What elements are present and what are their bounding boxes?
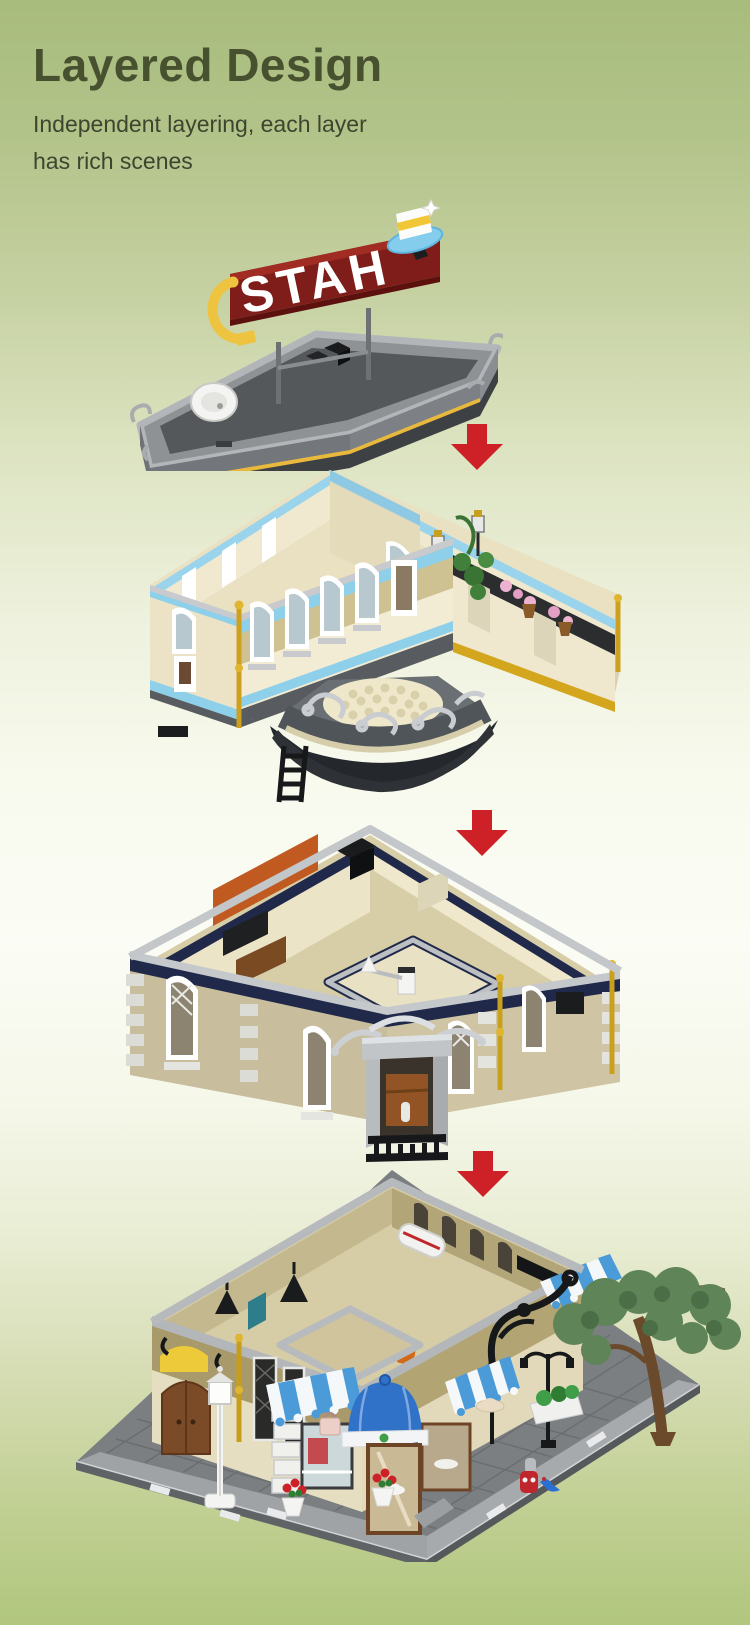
ground-floor-illustration <box>62 1142 742 1562</box>
page-title: Layered Design <box>33 38 383 92</box>
down-arrow-2 <box>456 810 508 856</box>
down-arrow-icon <box>457 1151 509 1197</box>
product-detail-page: Layered Design Independent layering, eac… <box>0 0 750 1625</box>
roof-illustration: STAH <box>128 196 503 471</box>
middle-floor-illustration <box>118 812 623 1162</box>
layer-ground-floor <box>62 1142 742 1562</box>
down-arrow-1 <box>451 424 503 470</box>
down-arrow-icon <box>451 424 503 470</box>
down-arrow-icon <box>456 810 508 856</box>
page-subtitle: Independent layering, each layer has ric… <box>33 106 453 180</box>
down-arrow-3 <box>457 1151 509 1197</box>
layer-upper-floor <box>138 458 628 803</box>
layer-roof: STAH <box>128 196 503 471</box>
upper-floor-illustration <box>138 458 628 803</box>
ladder-icon <box>279 746 306 802</box>
layer-middle-floor <box>118 812 623 1162</box>
sign-text: STAH <box>235 238 396 324</box>
